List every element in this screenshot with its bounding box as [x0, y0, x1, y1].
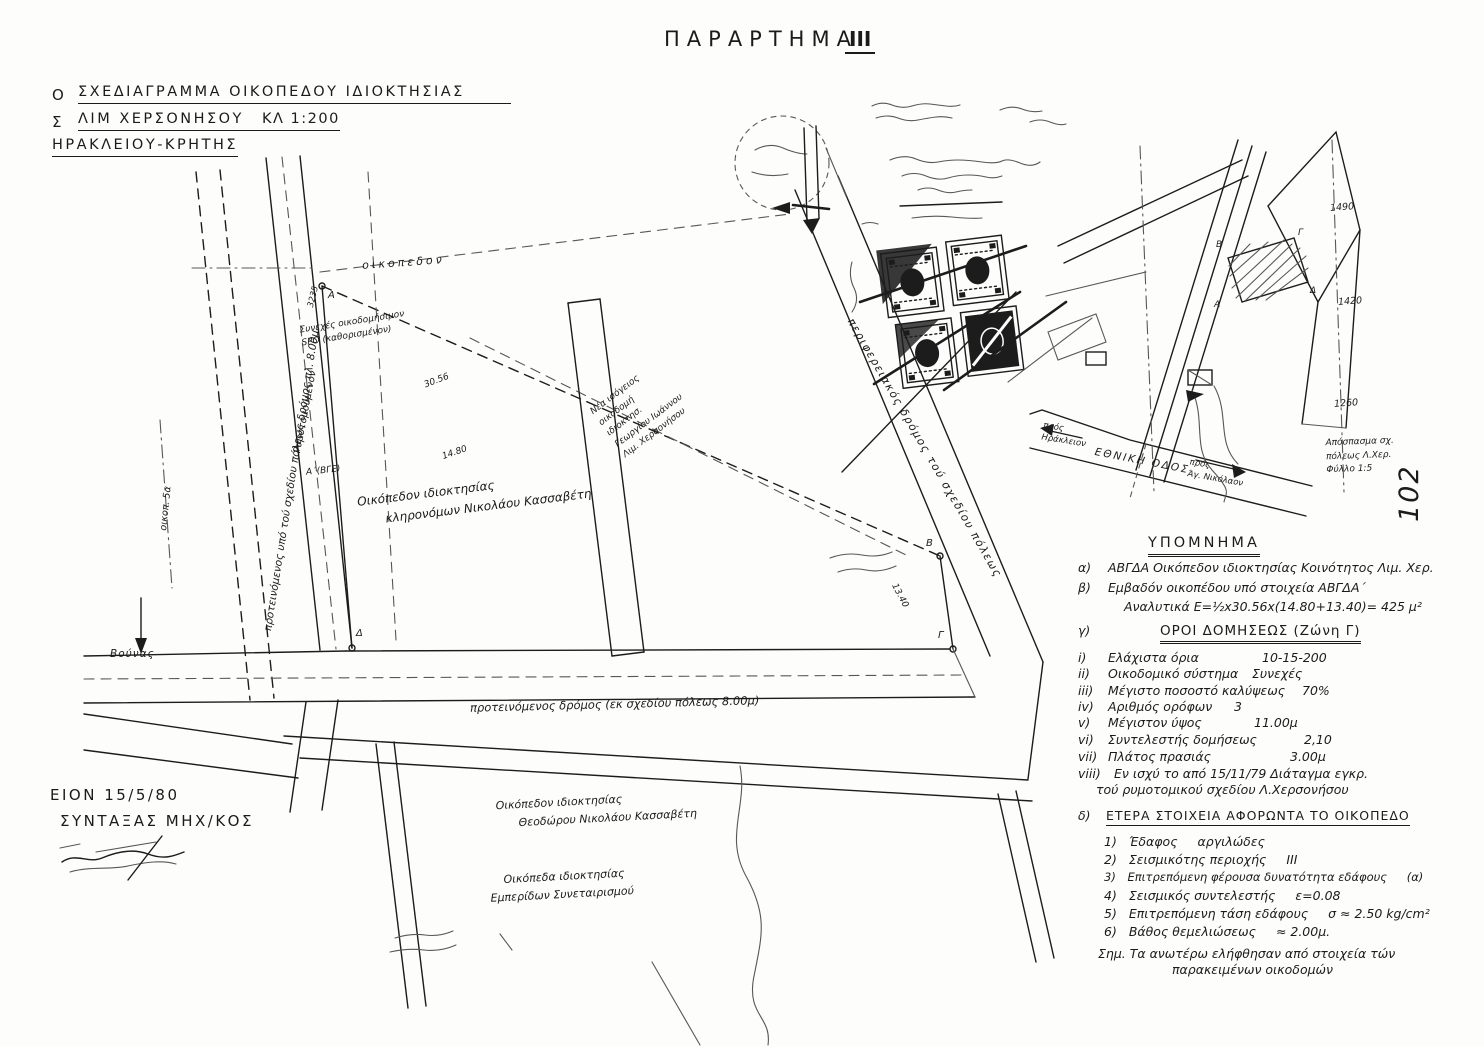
item-label: Αριθμός ορόφων	[1108, 699, 1212, 714]
item-viii-line-1: Εν ισχύ το από 15/11/79 Διάταγμα εγκρ.	[1114, 766, 1368, 781]
south-plot-1-line-1: Οικόπεδον ιδιοκτησίας	[495, 793, 622, 813]
item-number: 4)	[1104, 888, 1117, 903]
item-value: 70%	[1302, 683, 1330, 698]
plot-corner-b: Β	[926, 538, 933, 550]
item-number: 3)	[1104, 870, 1116, 884]
signature-scribble	[60, 836, 184, 880]
item-value: 10-15-200	[1262, 650, 1327, 665]
legend-entry-a: α) ΑΒΓΔΑ Οικόπεδον ιδιοκτησίας Κοινότητο…	[1076, 560, 1472, 578]
title-line-2: ΛΙΜ ΧΕΡΣΟΝΗΣΟΥ	[78, 111, 262, 131]
bearing-capacity-item: 3) Επιτρεπόμενη φέρουσα δυνατότητα εδάφο…	[1104, 870, 1423, 884]
title-edge-letter-1: Ο	[52, 86, 64, 104]
legend-entry-b2: Αναλυτικά Ε=½x30.56x(14.80+13.40)= 425 μ…	[1076, 599, 1472, 617]
item-number: viii)	[1078, 766, 1101, 781]
title-scale: ΚΛ 1:200	[262, 111, 340, 131]
item-label: Πλάτος πρασιάς	[1108, 749, 1211, 764]
lower-plots	[284, 736, 1054, 1045]
item-value: ≈ 2.00μ.	[1276, 924, 1330, 939]
minimap-grid-1260: 1260	[1334, 397, 1359, 410]
item-number: 1)	[1104, 834, 1117, 849]
minimap-corner-b: Β	[1216, 240, 1222, 251]
seismic-coefficient-item: 4) Σεισμικός συντελεστής ε=0.08	[1104, 888, 1340, 903]
legend-item-vi: vi) Συντελεστής δομήσεως 2,10	[1076, 732, 1472, 750]
legend-item-ii: ii) Οικοδομικό σύστημα Συνεχές	[1076, 666, 1472, 684]
item-value: 3.00μ	[1290, 749, 1326, 764]
item-number: vii)	[1078, 749, 1097, 764]
label-south-plot-2: Οικόπεδα ιδιοκτησίας Εμπερίδων Συνεταιρι…	[489, 864, 634, 907]
item-label: Σεισμικός συντελεστής	[1129, 888, 1276, 903]
north-arrow-and-detail-circle	[735, 116, 846, 234]
title-edge-letter-2: Σ	[52, 113, 61, 131]
minimap-grid-1490: 1490	[1330, 201, 1355, 214]
item-viii-line-2: τού ρυμοτομικού σχεδίου Λ.Χερσονήσου	[1096, 782, 1349, 797]
item-number: v)	[1078, 715, 1090, 730]
note-text-2: παρακειμένων οικοδομών	[1172, 962, 1333, 977]
legend-item-viii-cont: τού ρυμοτομικού σχεδίου Λ.Χερσονήσου	[1076, 782, 1472, 800]
other-data-title: ΕΤΕΡΑ ΣΤΟΙΧΕΙΑ ΑΦΟΡΩΝΤΑ ΤΟ ΟΙΚΟΠΕΔΟ	[1106, 808, 1410, 826]
appendix-number: III	[845, 27, 875, 54]
minimap-extract-note: Απόσπασμα σχ. πόλεως Λ.Χερ. Φύλλο 1:5	[1325, 435, 1395, 478]
item-label: Μέγιστον ύψος	[1108, 715, 1202, 730]
label-bounas: Βούνας	[110, 648, 155, 661]
minimap-corner-a: Α	[1214, 300, 1220, 311]
item-value: Συνεχές	[1252, 666, 1302, 681]
item-value: 3	[1234, 699, 1242, 714]
item-value: 2,10	[1304, 732, 1332, 747]
footer-place-date: ΕΙΟΝ 15/5/80	[50, 786, 180, 804]
entry-b-text-2: Αναλυτικά Ε=½x30.56x(14.80+13.40)= 425 μ…	[1124, 599, 1422, 614]
item-label: Ελάχιστα όρια	[1108, 650, 1199, 665]
legend-entry-d: δ) ΕΤΕΡΑ ΣΤΟΙΧΕΙΑ ΑΦΟΡΩΝΤΑ ΤΟ ΟΙΚΟΠΕΔΟ	[1076, 808, 1472, 826]
plot-corner-g: Γ	[938, 630, 944, 642]
page-title: ΠΑΡΑΡΤΗΜΑ	[664, 27, 858, 52]
legend-note-line-2: παρακειμένων οικοδομών	[1076, 962, 1472, 980]
entry-b-text: Εμβαδόν οικοπέδου υπό στοιχεία ΑΒΓΔΑ΄	[1108, 580, 1366, 595]
south-plot-2-line-1: Οικόπεδα ιδιοκτησίας	[503, 867, 625, 886]
item-number: iv)	[1078, 699, 1094, 714]
legend-entry-b: β) Εμβαδόν οικοπέδου υπό στοιχεία ΑΒΓΔΑ΄	[1076, 580, 1472, 598]
plot-corner-d: Δ	[356, 628, 363, 640]
item-value: ε=0.08	[1295, 888, 1340, 903]
entry-d-number: δ)	[1078, 808, 1091, 823]
item-label: Έδαφος	[1129, 834, 1178, 849]
entry-a-number: α)	[1078, 560, 1091, 575]
item-value: σ ≈ 2.50 kg/cm²	[1328, 906, 1430, 921]
foundation-depth-item: 6) Βάθος θεμελιώσεως ≈ 2.00μ.	[1104, 924, 1330, 939]
item-number: 2)	[1104, 852, 1117, 867]
left-roads	[160, 156, 352, 812]
soil-item: 1) Έδαφος αργιλώδες	[1104, 834, 1265, 849]
bounas-direction-arrow	[135, 598, 147, 654]
entry-a-text: ΑΒΓΔΑ Οικόπεδον ιδιοκτησίας Κοινότητος Λ…	[1108, 560, 1434, 575]
item-value: αργιλώδες	[1198, 834, 1265, 849]
item-label: Επιτρεπόμενη τάση εδάφους	[1129, 906, 1308, 921]
legend-item-vii: vii) Πλάτος πρασιάς 3.00μ	[1076, 749, 1472, 767]
item-number: ii)	[1078, 666, 1090, 681]
legend-block: ΥΠΟΜΝΗΜΑ α) ΑΒΓΔΑ Οικόπεδον ιδιοκτησίας …	[1076, 532, 1472, 992]
item-label: Επιτρεπόμενη φέρουσα δυνατότητα εδάφους	[1127, 870, 1387, 884]
item-label: Οικοδομικό σύστημα	[1108, 666, 1238, 681]
bottom-left-road	[84, 714, 298, 778]
item-value: (α)	[1407, 870, 1424, 884]
minimap-corner-g: Γ	[1298, 228, 1303, 239]
entry-b-number: β)	[1078, 580, 1091, 595]
item-number: iii)	[1078, 683, 1093, 698]
minimap-grid-1420: 1420	[1338, 295, 1363, 308]
item-label: Βάθος θεμελιώσεως	[1129, 924, 1256, 939]
legend-entry-c: γ) ΟΡΟΙ ΔΟΜΗΣΕΩΣ (Ζώνη Γ)	[1076, 623, 1472, 641]
seismicity-item: 2) Σεισμικότης περιοχής III	[1104, 852, 1297, 867]
to-irakleion-line-1: πρός	[1043, 421, 1065, 434]
title-line-1: ΣΧΕΔΙΑΓΡΑΜΜΑ ΟΙΚΟΠΕΔΟΥ ΙΔΙΟΚΤΗΣΙΑΣ	[78, 84, 511, 104]
scanned-site-plan-page: ΠΑΡΑΡΤΗΜΑ III Ο ΣΧΕΔΙΑΓΡΑΜΜΑ ΟΙΚΟΠΕΔΟΥ Ι…	[0, 0, 1484, 1047]
building-terms-title: ΟΡΟΙ ΔΟΜΗΣΕΩΣ (Ζώνη Γ)	[1160, 623, 1361, 644]
soil-stress-item: 5) Επιτρεπόμενη τάση εδάφους σ ≈ 2.50 kg…	[1104, 906, 1430, 921]
page-number: 102	[1394, 464, 1426, 522]
legend-title: ΥΠΟΜΝΗΜΑ	[1148, 535, 1260, 557]
item-number: vi)	[1078, 732, 1094, 747]
minimap-corner-d: Δ	[1310, 286, 1316, 297]
note-text-1: Σημ. Τα ανωτέρω ελήφθησαν από στοιχεία τ…	[1098, 946, 1395, 961]
item-label: Συντελεστής δομήσεως	[1108, 732, 1257, 747]
extract-line-2: πόλεως Λ.Χερ.	[1326, 449, 1392, 461]
entry-c-number: γ)	[1078, 623, 1090, 638]
item-number: i)	[1078, 650, 1086, 665]
item-value: III	[1286, 852, 1297, 867]
title-line-3: ΗΡΑΚΛΕΙΟΥ-ΚΡΗΤΗΣ	[52, 137, 238, 157]
item-number: 6)	[1104, 924, 1117, 939]
horizontal-road	[84, 649, 975, 703]
extract-line-3: Φύλλο 1:5	[1326, 464, 1372, 476]
plot-corner-a: Α	[328, 290, 335, 302]
revenue-stamps	[876, 234, 1024, 389]
item-number: 5)	[1104, 906, 1117, 921]
footer-author: ΣΥΝΤΑΞΑΣ ΜΗΧ/ΚΟΣ	[60, 812, 254, 830]
extract-line-1: Απόσπασμα σχ.	[1325, 436, 1394, 448]
legend-item-v: v) Μέγιστον ύψος 11.00μ	[1076, 715, 1472, 733]
item-label: Μέγιστο ποσοστό καλύψεως	[1108, 683, 1285, 698]
item-label: Σεισμικότης περιοχής	[1129, 852, 1267, 867]
item-value: 11.00μ	[1254, 715, 1298, 730]
